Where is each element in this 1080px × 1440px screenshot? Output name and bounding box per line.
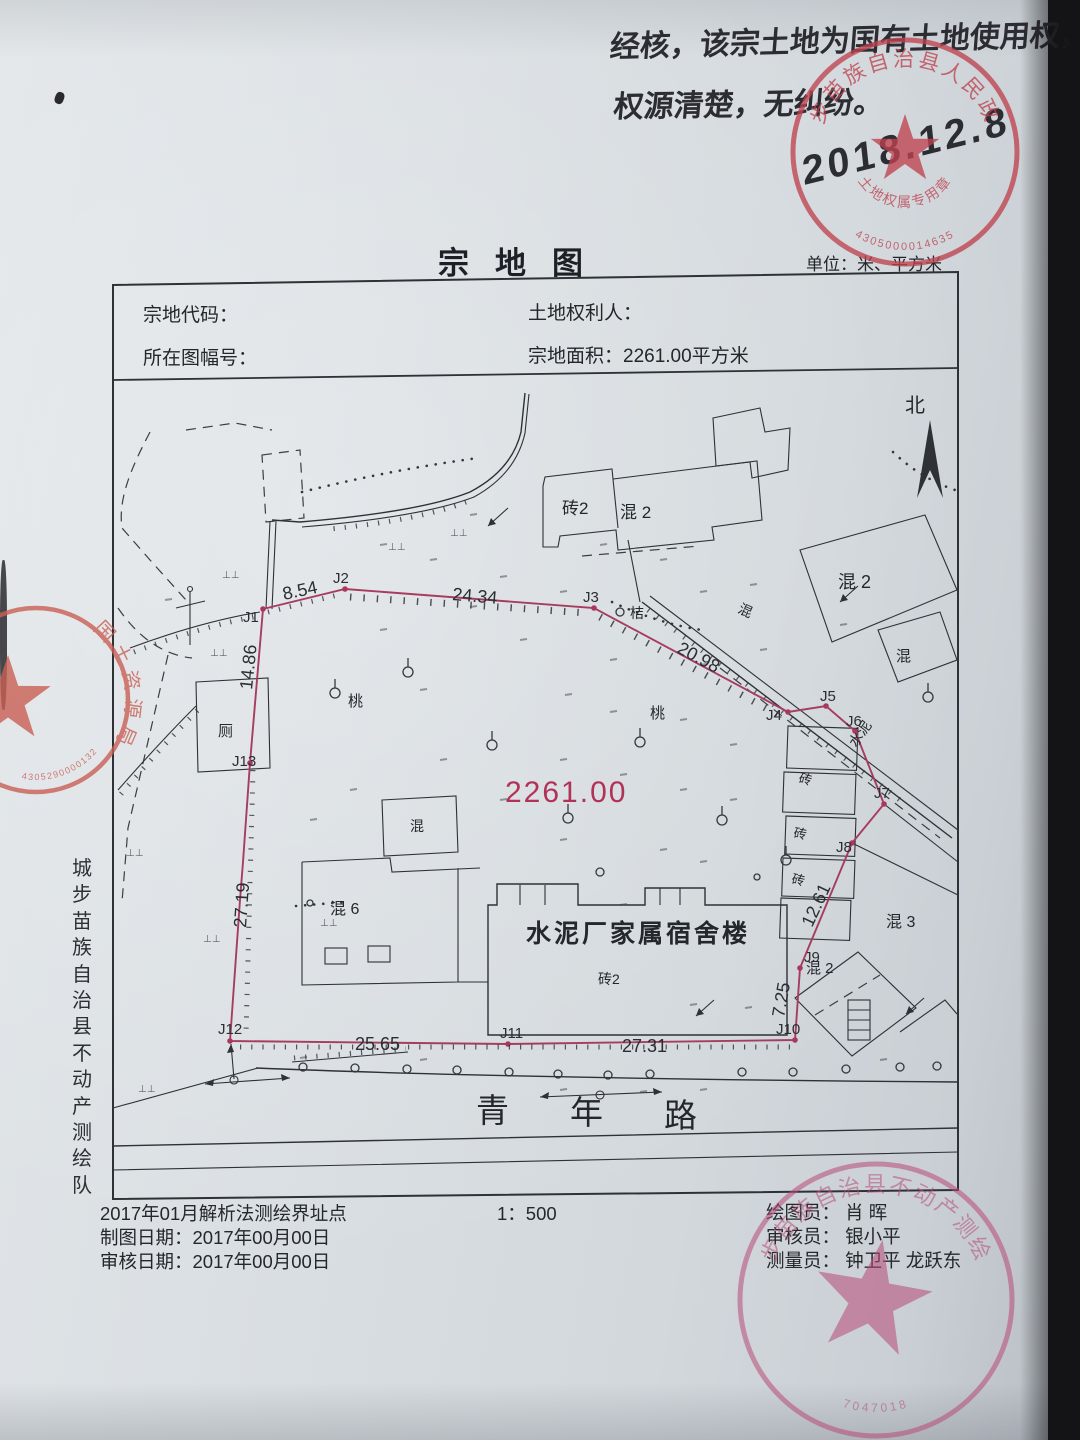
point-j11: J11 — [500, 1025, 523, 1042]
svg-text:4305000014635: 4305000014635 — [853, 228, 957, 253]
government-seal-inner-text: 土地权属专用章 — [855, 173, 954, 210]
label-zhuan-c: 砖 — [790, 871, 806, 888]
government-seal: 城步苗族自治县人民政府 土地权属专用章 4305000014635 — [0, 0, 1017, 264]
point-j7: J7 — [874, 785, 890, 802]
label-hun-right-small: 混 — [896, 648, 911, 665]
measure-24-34: 24.34 — [452, 584, 499, 608]
road-name-char2: 年 — [570, 1094, 603, 1131]
svg-text:⊥⊥: ⊥⊥ — [138, 1084, 155, 1095]
land-bureau-seal: 国土资源局 4305290000132 — [0, 608, 145, 792]
seal-star-icon — [871, 114, 939, 179]
measure-20-98: 20.98 — [674, 638, 723, 677]
grass-symbols: ⊥⊥⊥⊥ ⊥⊥⊥⊥ ⊥⊥⊥⊥ ⊥⊥⊥⊥ — [126, 528, 467, 1095]
survey-team-seal-serial: 7047018 — [842, 1396, 910, 1415]
label-hun-mid: 混 — [736, 600, 755, 620]
svg-text:⊥⊥: ⊥⊥ — [450, 528, 467, 539]
label-hun2-right: 混 2 — [838, 572, 871, 592]
point-j9: J9 — [804, 949, 820, 966]
point-j6: J6 — [846, 713, 862, 730]
government-seal-serial: 4305000014635 — [853, 228, 957, 253]
north-label: 北 — [905, 394, 925, 417]
parcel-area-number: 2261.00 — [505, 776, 627, 809]
label-hun-left: 混 — [410, 818, 424, 834]
point-j1: J1 — [243, 609, 259, 626]
measure-8-54: 8.54 — [281, 577, 319, 604]
measure-27-31: 27.31 — [622, 1036, 667, 1056]
label-hun3: 混 3 — [886, 913, 915, 931]
road-tree-circles — [299, 1062, 941, 1079]
svg-text:⊥⊥: ⊥⊥ — [126, 848, 143, 859]
photo-dark-edge — [1020, 0, 1080, 1440]
land-bureau-seal-ring-text: 国土资源局 — [89, 617, 145, 754]
label-tao-a: 桃 — [650, 705, 665, 722]
svg-text:⊥⊥: ⊥⊥ — [222, 570, 239, 581]
point-j12: J12 — [218, 1021, 242, 1038]
label-tao-b: 桃 — [348, 693, 363, 710]
point-j2: J2 — [333, 570, 349, 587]
svg-text:土地权属专用章: 土地权属专用章 — [855, 173, 954, 210]
road-name-char1: 青 — [476, 1092, 509, 1129]
label-hun2-top: 混 2 — [620, 503, 651, 522]
point-j10: J10 — [776, 1021, 800, 1038]
label-zhuan2-bottom: 砖2 — [598, 971, 620, 987]
svg-text:⊥⊥: ⊥⊥ — [210, 648, 227, 659]
tree-symbols — [307, 608, 933, 906]
measure-7-25: 7.25 — [768, 981, 794, 1019]
main-building-label: 水泥厂家属宿舍楼 — [526, 919, 750, 948]
point-j5: J5 — [820, 688, 836, 705]
point-j4: J4 — [766, 707, 782, 724]
label-ce: 厕 — [218, 723, 233, 740]
svg-text:城步苗族自治县人民政府: 城步苗族自治县人民政府 — [0, 0, 1004, 127]
label-zhuan-a: 砖 — [797, 770, 813, 788]
svg-text:⊥⊥: ⊥⊥ — [320, 918, 337, 929]
map-frame — [113, 272, 958, 1199]
label-zhuan2-top: 砖2 — [562, 499, 588, 518]
svg-text:⊥⊥: ⊥⊥ — [203, 934, 220, 945]
measure-27-19: 27.19 — [230, 882, 253, 928]
north-arrow: 北 — [905, 394, 943, 498]
seal-star-icon — [0, 655, 51, 736]
photo-of-cadastral-document: { "annotation": { "line1": "经核，该宗土地为国有土地… — [0, 0, 1080, 1440]
road-name-char3: 路 — [664, 1097, 697, 1134]
seal-star-icon — [806, 1230, 940, 1359]
svg-text:国土资源局: 国土资源局 — [89, 617, 145, 754]
point-j3: J3 — [583, 589, 599, 606]
point-j13: J13 — [232, 753, 256, 770]
label-hun6: 混 6 — [330, 900, 359, 918]
svg-text:⊥⊥: ⊥⊥ — [388, 542, 405, 553]
label-zhuan-b: 砖 — [792, 825, 807, 842]
point-j8: J8 — [836, 839, 852, 856]
label-ju: 桔 — [630, 605, 644, 621]
measure-25-65: 25.65 — [355, 1034, 400, 1054]
government-seal-ring-text: 城步苗族自治县人民政府 — [0, 0, 1004, 127]
svg-text:7047018: 7047018 — [842, 1396, 910, 1415]
parcel-map-svg: ⊥⊥⊥⊥ ⊥⊥⊥⊥ ⊥⊥⊥⊥ ⊥⊥⊥⊥ 北 砖2 混 2 混 2 混 混 桔 桃… — [0, 0, 1080, 1440]
